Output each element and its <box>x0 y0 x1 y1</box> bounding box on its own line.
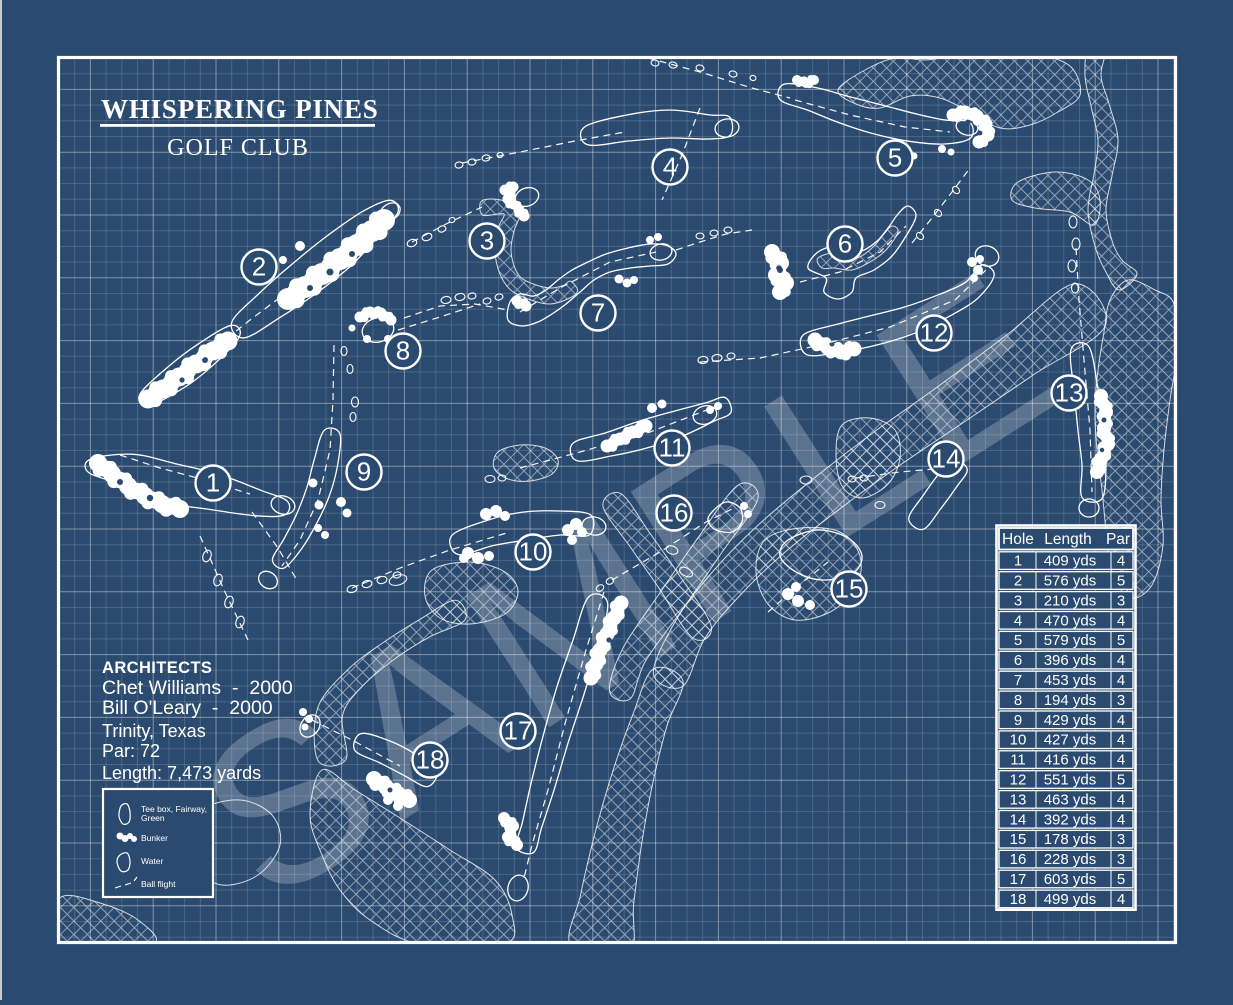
svg-text:7: 7 <box>591 298 605 328</box>
svg-text:8: 8 <box>1014 692 1022 709</box>
svg-text:15: 15 <box>1010 831 1027 848</box>
svg-text:10: 10 <box>519 537 548 567</box>
svg-text:3: 3 <box>1014 592 1022 609</box>
svg-text:576 yds: 576 yds <box>1044 573 1097 590</box>
svg-text:429 yds: 429 yds <box>1044 712 1097 729</box>
svg-text:5: 5 <box>1117 871 1125 888</box>
svg-text:228 yds: 228 yds <box>1044 851 1097 868</box>
svg-text:WHISPERING PINES: WHISPERING PINES <box>101 94 379 124</box>
svg-text:11: 11 <box>1010 752 1026 769</box>
svg-text:17: 17 <box>1010 871 1027 888</box>
svg-text:3: 3 <box>1117 851 1125 868</box>
svg-text:3: 3 <box>1117 592 1125 609</box>
svg-text:12: 12 <box>920 318 949 348</box>
svg-text:9: 9 <box>357 457 371 487</box>
svg-text:Ball flight: Ball flight <box>141 879 176 889</box>
svg-text:470 yds: 470 yds <box>1044 612 1097 629</box>
svg-text:14: 14 <box>1010 811 1027 828</box>
svg-text:4: 4 <box>1117 672 1125 689</box>
svg-text:2: 2 <box>252 252 266 282</box>
svg-text:603 yds: 603 yds <box>1044 871 1097 888</box>
svg-text:Par: 72: Par: 72 <box>102 741 160 761</box>
svg-text:16: 16 <box>1010 851 1027 868</box>
svg-text:4: 4 <box>1014 612 1022 629</box>
svg-text:1: 1 <box>1014 553 1022 570</box>
svg-text:Length: 7,473 yards: Length: 7,473 yards <box>102 763 261 783</box>
svg-text:17: 17 <box>504 716 533 746</box>
svg-text:5: 5 <box>1014 632 1022 649</box>
svg-text:5: 5 <box>1117 573 1125 590</box>
svg-text:Green: Green <box>141 813 165 823</box>
svg-text:4: 4 <box>1117 652 1125 669</box>
svg-text:4: 4 <box>1117 732 1125 749</box>
svg-text:Bill O'Leary - 2000: Bill O'Leary - 2000 <box>102 697 273 719</box>
svg-text:551 yds: 551 yds <box>1044 772 1097 789</box>
svg-text:2: 2 <box>1014 573 1022 590</box>
svg-text:14: 14 <box>932 444 961 474</box>
svg-text:13: 13 <box>1010 791 1027 808</box>
svg-text:11: 11 <box>659 433 686 463</box>
svg-text:Bunker: Bunker <box>141 833 168 843</box>
svg-text:15: 15 <box>835 574 864 604</box>
svg-text:18: 18 <box>1010 891 1027 908</box>
svg-text:427 yds: 427 yds <box>1044 732 1097 749</box>
svg-text:3: 3 <box>480 226 494 256</box>
svg-text:Length: Length <box>1044 531 1091 548</box>
svg-text:6: 6 <box>1014 652 1022 669</box>
svg-text:4: 4 <box>1117 791 1125 808</box>
svg-text:1: 1 <box>206 468 220 498</box>
svg-text:453 yds: 453 yds <box>1044 672 1097 689</box>
svg-text:Chet Williams - 2000: Chet Williams - 2000 <box>102 677 293 699</box>
svg-text:3: 3 <box>1117 692 1125 709</box>
svg-text:3: 3 <box>1117 831 1125 848</box>
svg-text:18: 18 <box>416 745 445 775</box>
svg-text:409 yds: 409 yds <box>1044 553 1097 570</box>
svg-text:499 yds: 499 yds <box>1044 891 1097 908</box>
svg-text:5: 5 <box>1117 772 1125 789</box>
svg-text:Water: Water <box>141 856 164 866</box>
svg-text:4: 4 <box>1117 891 1125 908</box>
svg-text:8: 8 <box>396 336 410 366</box>
svg-text:4: 4 <box>663 152 677 182</box>
svg-text:210 yds: 210 yds <box>1044 592 1097 609</box>
svg-text:10: 10 <box>1010 732 1027 749</box>
svg-text:13: 13 <box>1055 378 1084 408</box>
svg-text:194 yds: 194 yds <box>1044 692 1097 709</box>
svg-text:7: 7 <box>1014 672 1022 689</box>
svg-text:Par: Par <box>1106 531 1130 548</box>
svg-text:416 yds: 416 yds <box>1044 752 1097 769</box>
svg-text:ARCHITECTS: ARCHITECTS <box>102 659 212 677</box>
svg-text:4: 4 <box>1117 811 1125 828</box>
svg-text:463 yds: 463 yds <box>1044 791 1097 808</box>
svg-text:5: 5 <box>1117 632 1125 649</box>
svg-text:178 yds: 178 yds <box>1044 831 1097 848</box>
svg-text:4: 4 <box>1117 612 1125 629</box>
svg-text:396 yds: 396 yds <box>1044 652 1097 669</box>
svg-text:6: 6 <box>838 229 852 259</box>
svg-text:4: 4 <box>1117 752 1125 769</box>
svg-text:579 yds: 579 yds <box>1044 632 1097 649</box>
svg-text:16: 16 <box>660 498 689 528</box>
svg-text:Trinity, Texas: Trinity, Texas <box>102 721 206 741</box>
svg-text:9: 9 <box>1014 712 1022 729</box>
svg-text:Hole: Hole <box>1002 531 1034 548</box>
svg-text:12: 12 <box>1010 772 1027 789</box>
svg-text:4: 4 <box>1117 553 1125 570</box>
svg-text:392 yds: 392 yds <box>1044 811 1097 828</box>
svg-text:5: 5 <box>888 143 902 173</box>
svg-text:4: 4 <box>1117 712 1125 729</box>
svg-text:GOLF CLUB: GOLF CLUB <box>167 135 309 161</box>
